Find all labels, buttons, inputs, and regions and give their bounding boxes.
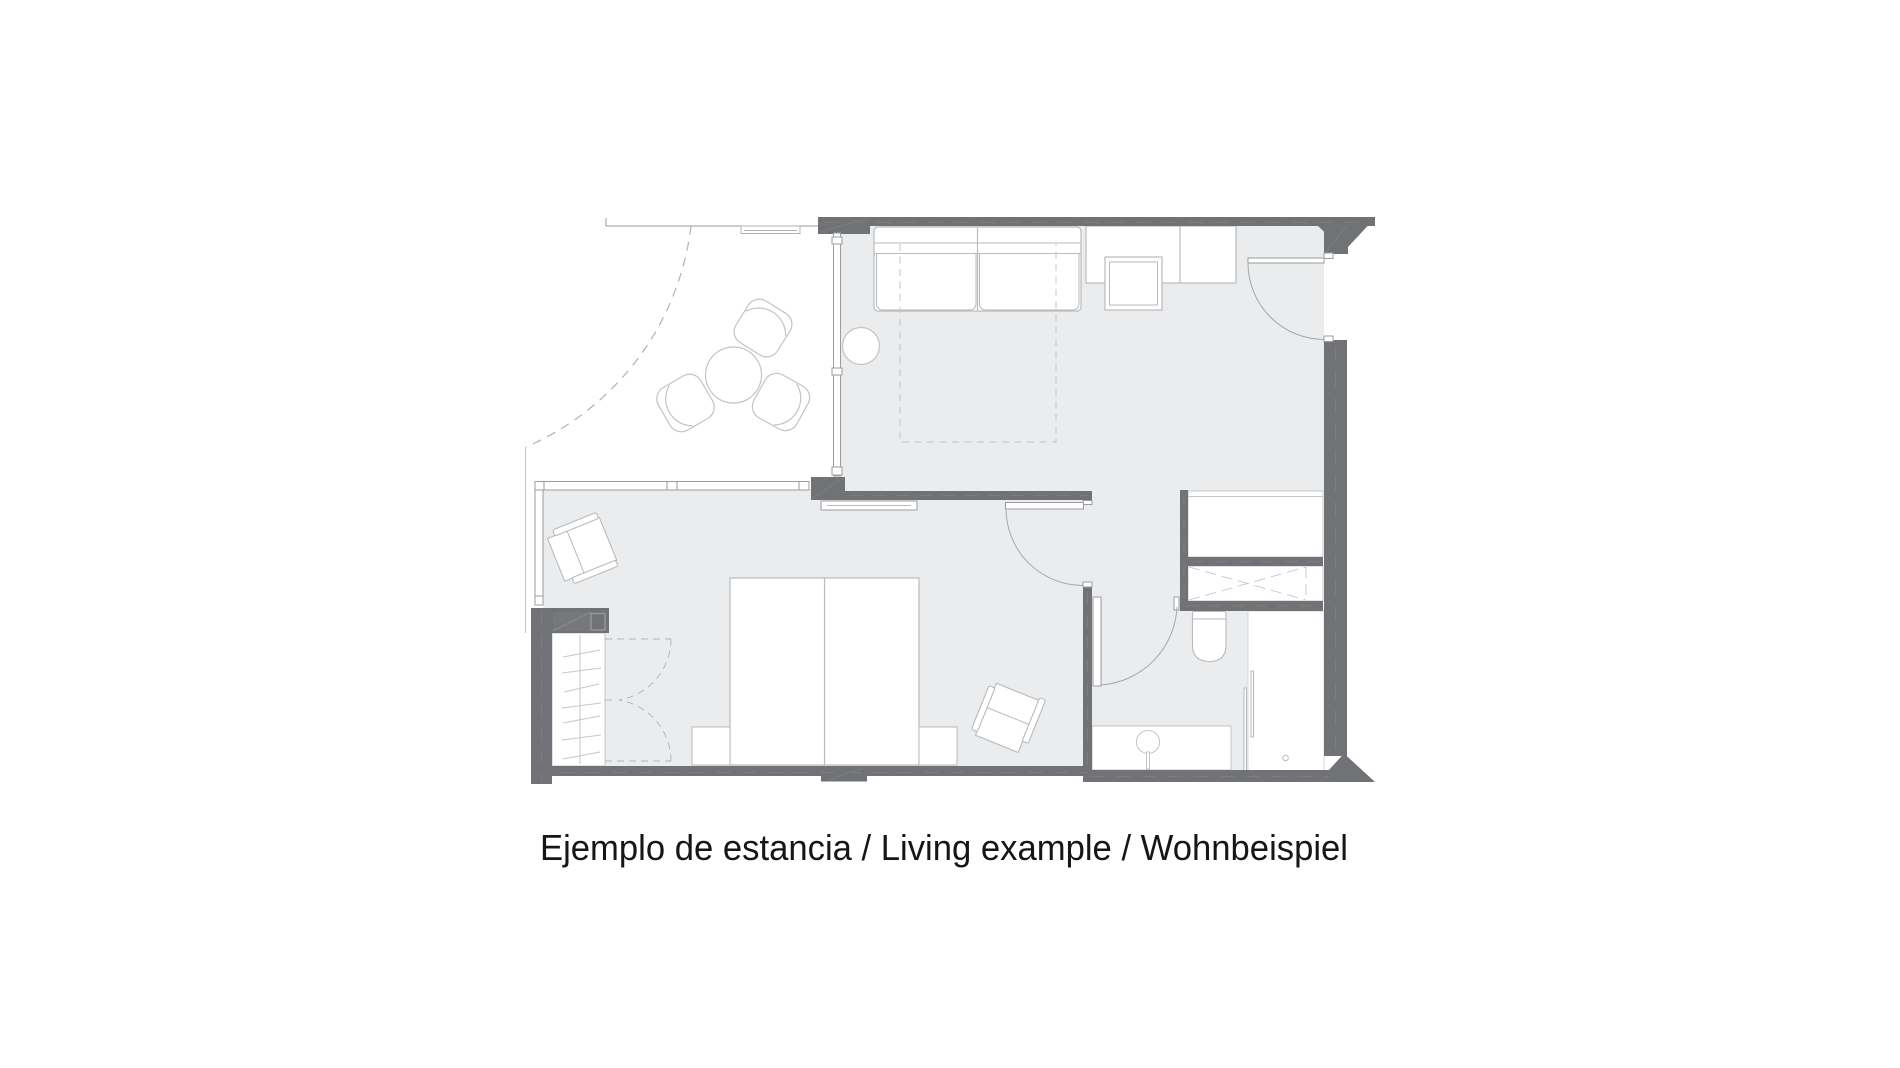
svg-text:Ejemplo de estancia / Living e: Ejemplo de estancia / Living example / W… — [540, 827, 1348, 868]
